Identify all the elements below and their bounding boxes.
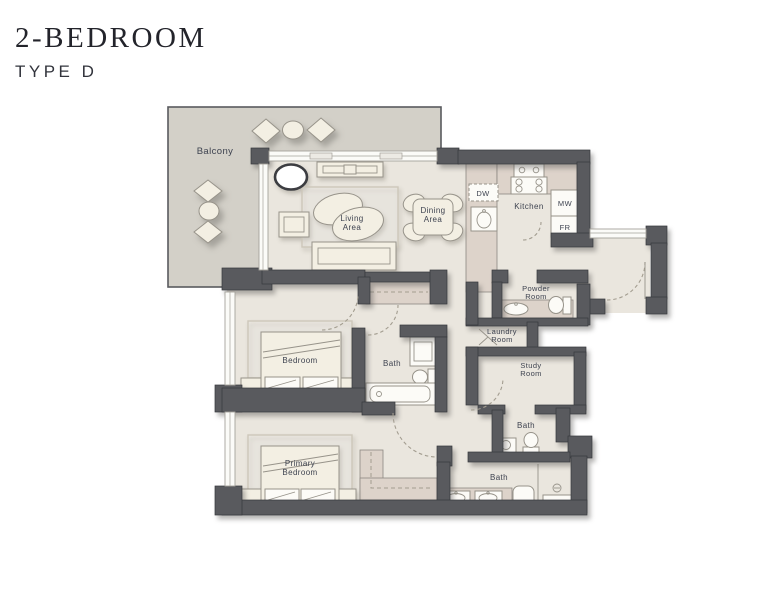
room-label-living-1: Living [340, 214, 363, 223]
room-label-bedroom: Bedroom [282, 356, 317, 365]
toilet-icon [549, 297, 564, 314]
armchair-icon [279, 212, 309, 237]
room-label-powder-2: Room [525, 292, 547, 301]
label-dishwasher: DW [476, 189, 490, 198]
room-label-bath-ensuite: Bath [383, 359, 401, 368]
kitchen-sink-icon [514, 164, 544, 177]
floor-plan: Balcony Living Area Dining Area Kitchen … [0, 0, 771, 600]
room-label-primary-1: Primary [285, 459, 315, 468]
room-label-study-2: Room [520, 369, 542, 378]
sink-icon [504, 303, 528, 315]
prep-sink-icon [471, 207, 497, 231]
room-label-kitchen: Kitchen [514, 202, 543, 211]
side-table-icon [283, 121, 304, 139]
room-label-primary-2: Bedroom [282, 468, 317, 477]
walkin-closet [360, 478, 437, 500]
room-label-bath-small: Bath [517, 421, 535, 430]
toilet-icon [524, 433, 538, 448]
room-label-dining-1: Dining [420, 206, 445, 215]
stove-icon [511, 177, 547, 194]
sofa-icon [312, 242, 396, 270]
side-table-icon [199, 202, 219, 220]
toilet-tank-icon [563, 297, 571, 314]
label-microwave: MW [558, 199, 573, 208]
window-icon [259, 164, 268, 270]
floor-plan-page: 2-BEDROOM TYPE D [0, 0, 771, 600]
window-icon [590, 229, 646, 238]
label-fridge: FR [560, 223, 571, 232]
room-label-dining-2: Area [424, 215, 443, 224]
tv-icon [344, 165, 356, 174]
room-label-balcony: Balcony [197, 146, 234, 157]
toilet-icon [413, 370, 428, 384]
room-label-bath-primary: Bath [490, 473, 508, 482]
room-label-living-2: Area [343, 223, 362, 232]
room-label-laundry-2: Room [491, 335, 513, 344]
round-table-icon [275, 165, 307, 190]
